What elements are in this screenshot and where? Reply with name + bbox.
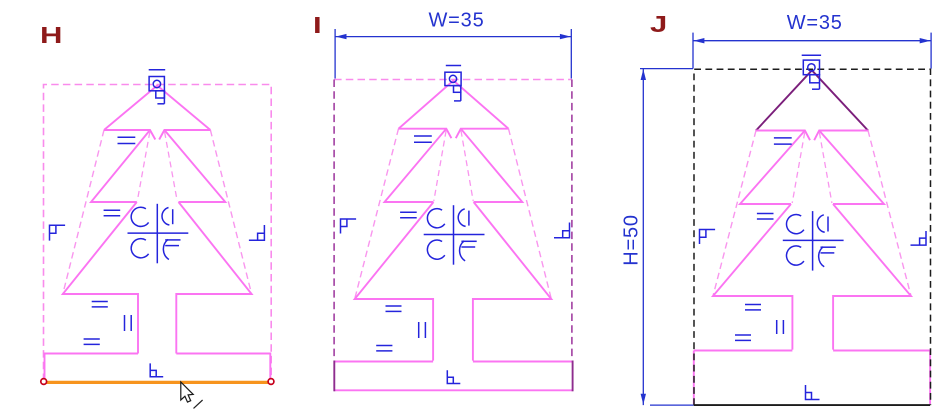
svg-text:H=50: H=50 bbox=[621, 214, 643, 266]
svg-text:W=35: W=35 bbox=[787, 12, 843, 34]
svg-text:W=35: W=35 bbox=[428, 10, 484, 32]
